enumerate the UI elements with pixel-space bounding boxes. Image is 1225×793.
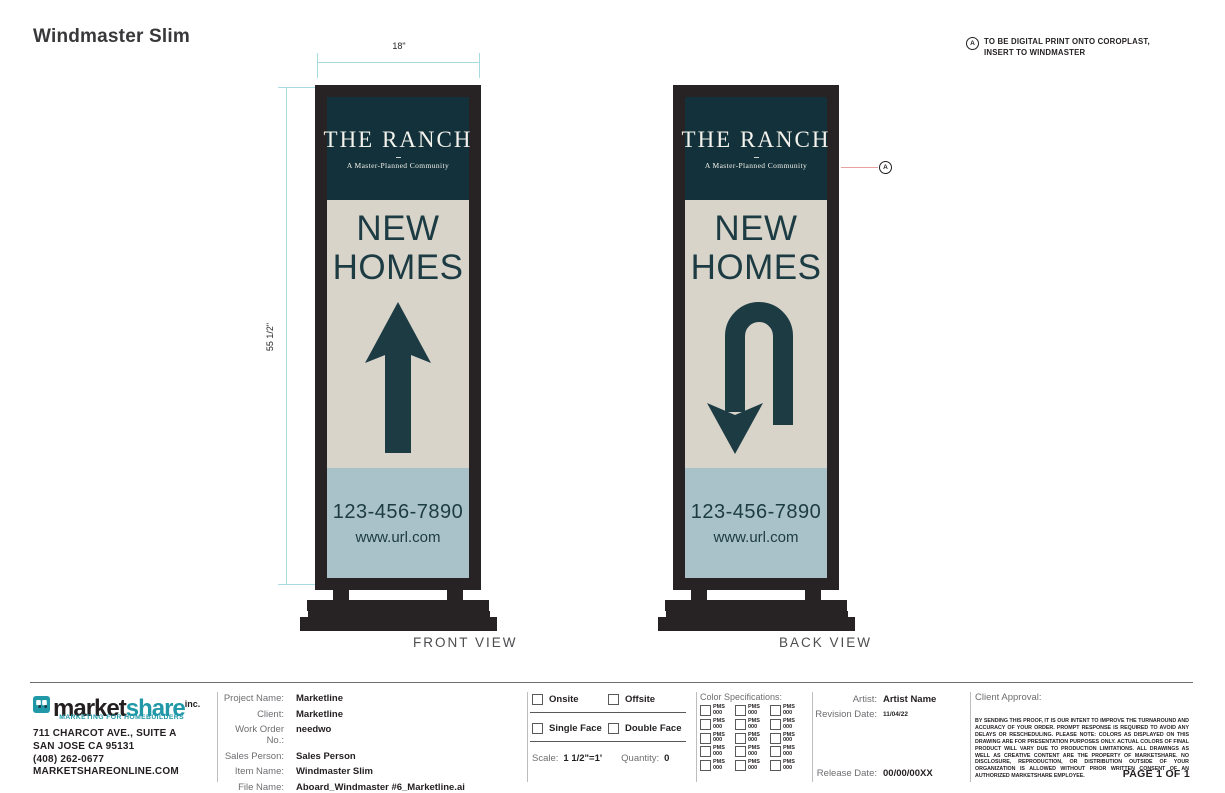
artist-value: Artist Name bbox=[883, 694, 936, 705]
pms-checkbox[interactable] bbox=[770, 746, 781, 757]
print-note-text: TO BE DIGITAL PRINT ONTO COROPLAST, INSE… bbox=[984, 37, 1150, 58]
pms-cell: PMS000 bbox=[770, 731, 805, 745]
titleblock-divider bbox=[812, 692, 813, 782]
pms-cell: PMS000 bbox=[735, 704, 770, 718]
pms-label: PMS000 bbox=[713, 705, 725, 716]
offsite-label: Offsite bbox=[625, 694, 655, 705]
pms-cell: PMS000 bbox=[700, 718, 735, 732]
u-turn-arrow-icon bbox=[685, 200, 827, 468]
pms-cell: PMS000 bbox=[770, 704, 805, 718]
height-dimension-line bbox=[286, 87, 287, 585]
width-dimension-line bbox=[317, 62, 480, 63]
height-dimension-label: 55 1/2" bbox=[265, 307, 275, 367]
width-dimension-label: 18" bbox=[369, 41, 429, 51]
revision-date-row: Revision Date: 11/04/22 bbox=[815, 709, 908, 720]
brand-divider bbox=[396, 157, 401, 158]
revision-date-value: 11/04/22 bbox=[883, 709, 908, 720]
double-face-option: Double Face bbox=[608, 723, 682, 734]
revision-date-label: Revision Date: bbox=[815, 709, 877, 720]
scale-quantity-row: Scale: 1 1/2"=1' Quantity: 0 bbox=[532, 753, 669, 764]
front-sign-panel: THE RANCH A Master-Planned Community NEW… bbox=[327, 97, 469, 578]
field-value: Windmaster Slim bbox=[296, 766, 373, 777]
marketshare-tagline: MARKETING FOR HOMEBUILDERS bbox=[52, 714, 184, 721]
client-approval-title: Client Approval: bbox=[975, 692, 1042, 703]
field-value: Aboard_Windmaster #6_Marketline.ai bbox=[296, 782, 465, 793]
proof-sheet: Windmaster Slim A TO BE DIGITAL PRINT ON… bbox=[0, 0, 1225, 793]
sign-url: www.url.com bbox=[713, 529, 798, 546]
pms-checkbox[interactable] bbox=[770, 733, 781, 744]
pms-checkbox[interactable] bbox=[700, 719, 711, 730]
options-divider bbox=[530, 741, 686, 742]
pms-cell: PMS000 bbox=[770, 759, 805, 773]
pms-cell: PMS000 bbox=[700, 731, 735, 745]
field-label: Project Name: bbox=[222, 693, 284, 704]
pms-checkbox[interactable] bbox=[735, 705, 746, 716]
callout-a-badge: A bbox=[966, 37, 979, 50]
pms-label: PMS000 bbox=[783, 733, 795, 744]
titleblock-divider bbox=[527, 692, 528, 782]
sign-phone: 123-456-7890 bbox=[691, 501, 822, 524]
titleblock-divider bbox=[696, 692, 697, 782]
pms-label: PMS000 bbox=[748, 705, 760, 716]
front-sign-body-panel: NEW HOMES bbox=[327, 200, 469, 468]
company-website: MARKETSHAREONLINE.COM bbox=[33, 766, 179, 779]
pms-cell: PMS000 bbox=[700, 704, 735, 718]
onsite-option: Onsite bbox=[532, 694, 579, 705]
front-sign-header-panel: THE RANCH A Master-Planned Community bbox=[327, 97, 469, 200]
release-date-row: Release Date: 00/00/00XX bbox=[815, 768, 933, 779]
pms-checkbox[interactable] bbox=[700, 746, 711, 757]
pms-label: PMS000 bbox=[783, 705, 795, 716]
company-phone: (408) 262-0677 bbox=[33, 754, 179, 767]
artist-label: Artist: bbox=[815, 694, 877, 705]
pms-grid: PMS000PMS000PMS000PMS000PMS000PMS000PMS0… bbox=[700, 704, 805, 772]
pms-cell: PMS000 bbox=[735, 718, 770, 732]
pms-label: PMS000 bbox=[713, 760, 725, 771]
pms-label: PMS000 bbox=[783, 760, 795, 771]
field-value: Sales Person bbox=[296, 751, 356, 762]
single-face-checkbox[interactable] bbox=[532, 723, 543, 734]
pms-label: PMS000 bbox=[783, 746, 795, 757]
back-view-label: BACK VIEW bbox=[779, 635, 872, 650]
project-field-row: Work Order No.: needwo bbox=[222, 724, 465, 746]
height-dimension-tick-bottom bbox=[278, 584, 315, 585]
pms-label: PMS000 bbox=[713, 719, 725, 730]
back-sign-panel: THE RANCH A Master-Planned Community NEW… bbox=[685, 97, 827, 578]
pms-checkbox[interactable] bbox=[735, 733, 746, 744]
width-dimension-tick-right bbox=[479, 53, 480, 78]
brand-title: THE RANCH bbox=[682, 127, 831, 153]
quantity-value: 0 bbox=[664, 753, 669, 764]
pms-cell: PMS000 bbox=[735, 745, 770, 759]
release-date-label: Release Date: bbox=[815, 768, 877, 779]
print-note-line2: INSERT TO WINDMASTER bbox=[984, 48, 1150, 59]
scale-label: Scale: bbox=[532, 753, 558, 764]
pms-checkbox[interactable] bbox=[770, 705, 781, 716]
project-field-row: Client: Marketline bbox=[222, 709, 465, 720]
back-sign-body-panel: NEW HOMES bbox=[685, 200, 827, 468]
project-field-row: Project Name: Marketline bbox=[222, 693, 465, 704]
field-value: needwo bbox=[296, 724, 331, 746]
brand-subtitle: A Master-Planned Community bbox=[705, 161, 807, 170]
single-face-option: Single Face bbox=[532, 723, 602, 734]
color-specs-title: Color Specifications: bbox=[700, 692, 782, 702]
pms-cell: PMS000 bbox=[735, 759, 770, 773]
callout-a-marker: A bbox=[879, 161, 892, 174]
field-label: Item Name: bbox=[222, 766, 284, 777]
pms-checkbox[interactable] bbox=[770, 719, 781, 730]
field-label: Client: bbox=[222, 709, 284, 720]
double-face-label: Double Face bbox=[625, 723, 682, 734]
quantity-label: Quantity: bbox=[621, 753, 659, 764]
front-sign-base bbox=[298, 590, 499, 631]
pms-label: PMS000 bbox=[748, 760, 760, 771]
pms-cell: PMS000 bbox=[770, 745, 805, 759]
front-sign: THE RANCH A Master-Planned Community NEW… bbox=[315, 85, 481, 590]
double-face-checkbox[interactable] bbox=[608, 723, 619, 734]
address-line2: SAN JOSE CA 95131 bbox=[33, 741, 179, 754]
pms-cell: PMS000 bbox=[770, 718, 805, 732]
titleblock-top-rule bbox=[30, 682, 1193, 683]
field-label: Work Order No.: bbox=[222, 724, 284, 746]
print-note: A TO BE DIGITAL PRINT ONTO COROPLAST, IN… bbox=[966, 37, 1150, 58]
company-address: 711 CHARCOT AVE., SUITE A SAN JOSE CA 95… bbox=[33, 728, 179, 779]
brand-title: THE RANCH bbox=[324, 127, 473, 153]
project-field-row: File Name: Aboard_Windmaster #6_Marketli… bbox=[222, 782, 465, 793]
offsite-option: Offsite bbox=[608, 694, 655, 705]
front-sign-footer-panel: 123-456-7890 www.url.com bbox=[327, 468, 469, 578]
page-number: PAGE 1 OF 1 bbox=[1090, 768, 1190, 780]
back-sign-footer-panel: 123-456-7890 www.url.com bbox=[685, 468, 827, 578]
field-label: File Name: bbox=[222, 782, 284, 793]
pms-label: PMS000 bbox=[748, 733, 760, 744]
straight-arrow-icon bbox=[327, 200, 469, 468]
onsite-checkbox[interactable] bbox=[532, 694, 543, 705]
scale-value: 1 1/2"=1' bbox=[563, 753, 602, 764]
pms-checkbox[interactable] bbox=[700, 760, 711, 771]
front-view-label: FRONT VIEW bbox=[413, 635, 518, 650]
pms-label: PMS000 bbox=[713, 746, 725, 757]
options-divider bbox=[530, 712, 686, 713]
print-note-line1: TO BE DIGITAL PRINT ONTO COROPLAST, bbox=[984, 37, 1150, 48]
field-value: Marketline bbox=[296, 709, 343, 720]
field-label: Sales Person: bbox=[222, 751, 284, 762]
single-face-label: Single Face bbox=[549, 723, 602, 734]
pms-checkbox[interactable] bbox=[770, 760, 781, 771]
pms-label: PMS000 bbox=[748, 746, 760, 757]
pms-cell: PMS000 bbox=[735, 731, 770, 745]
sign-url: www.url.com bbox=[355, 529, 440, 546]
sign-phone: 123-456-7890 bbox=[333, 501, 464, 524]
back-sign-base bbox=[656, 590, 857, 631]
pms-checkbox[interactable] bbox=[735, 760, 746, 771]
pms-label: PMS000 bbox=[783, 719, 795, 730]
pms-label: PMS000 bbox=[748, 719, 760, 730]
project-field-row: Sales Person: Sales Person bbox=[222, 751, 465, 762]
titleblock-divider bbox=[970, 692, 971, 782]
back-sign-header-panel: THE RANCH A Master-Planned Community bbox=[685, 97, 827, 200]
release-date-value: 00/00/00XX bbox=[883, 768, 933, 779]
pms-cell: PMS000 bbox=[700, 745, 735, 759]
onsite-label: Onsite bbox=[549, 694, 579, 705]
pms-cell: PMS000 bbox=[700, 759, 735, 773]
offsite-checkbox[interactable] bbox=[608, 694, 619, 705]
pms-checkbox[interactable] bbox=[735, 746, 746, 757]
address-line1: 711 CHARCOT AVE., SUITE A bbox=[33, 728, 179, 741]
project-info-section: Project Name: Marketline Client: Marketl… bbox=[222, 693, 465, 793]
width-dimension-tick-left bbox=[317, 53, 318, 78]
callout-leader-line bbox=[841, 167, 878, 168]
back-sign: THE RANCH A Master-Planned Community NEW… bbox=[673, 85, 839, 590]
marketshare-logo-icon bbox=[33, 696, 50, 713]
height-dimension-tick-top bbox=[278, 87, 315, 88]
pms-label: PMS000 bbox=[713, 733, 725, 744]
artist-row: Artist: Artist Name bbox=[815, 694, 936, 705]
project-field-row: Item Name: Windmaster Slim bbox=[222, 766, 465, 777]
page-title: Windmaster Slim bbox=[33, 26, 190, 48]
titleblock-divider bbox=[217, 692, 218, 782]
pms-checkbox[interactable] bbox=[735, 719, 746, 730]
field-value: Marketline bbox=[296, 693, 343, 704]
brand-subtitle: A Master-Planned Community bbox=[347, 161, 449, 170]
pms-checkbox[interactable] bbox=[700, 705, 711, 716]
brand-divider bbox=[754, 157, 759, 158]
pms-checkbox[interactable] bbox=[700, 733, 711, 744]
